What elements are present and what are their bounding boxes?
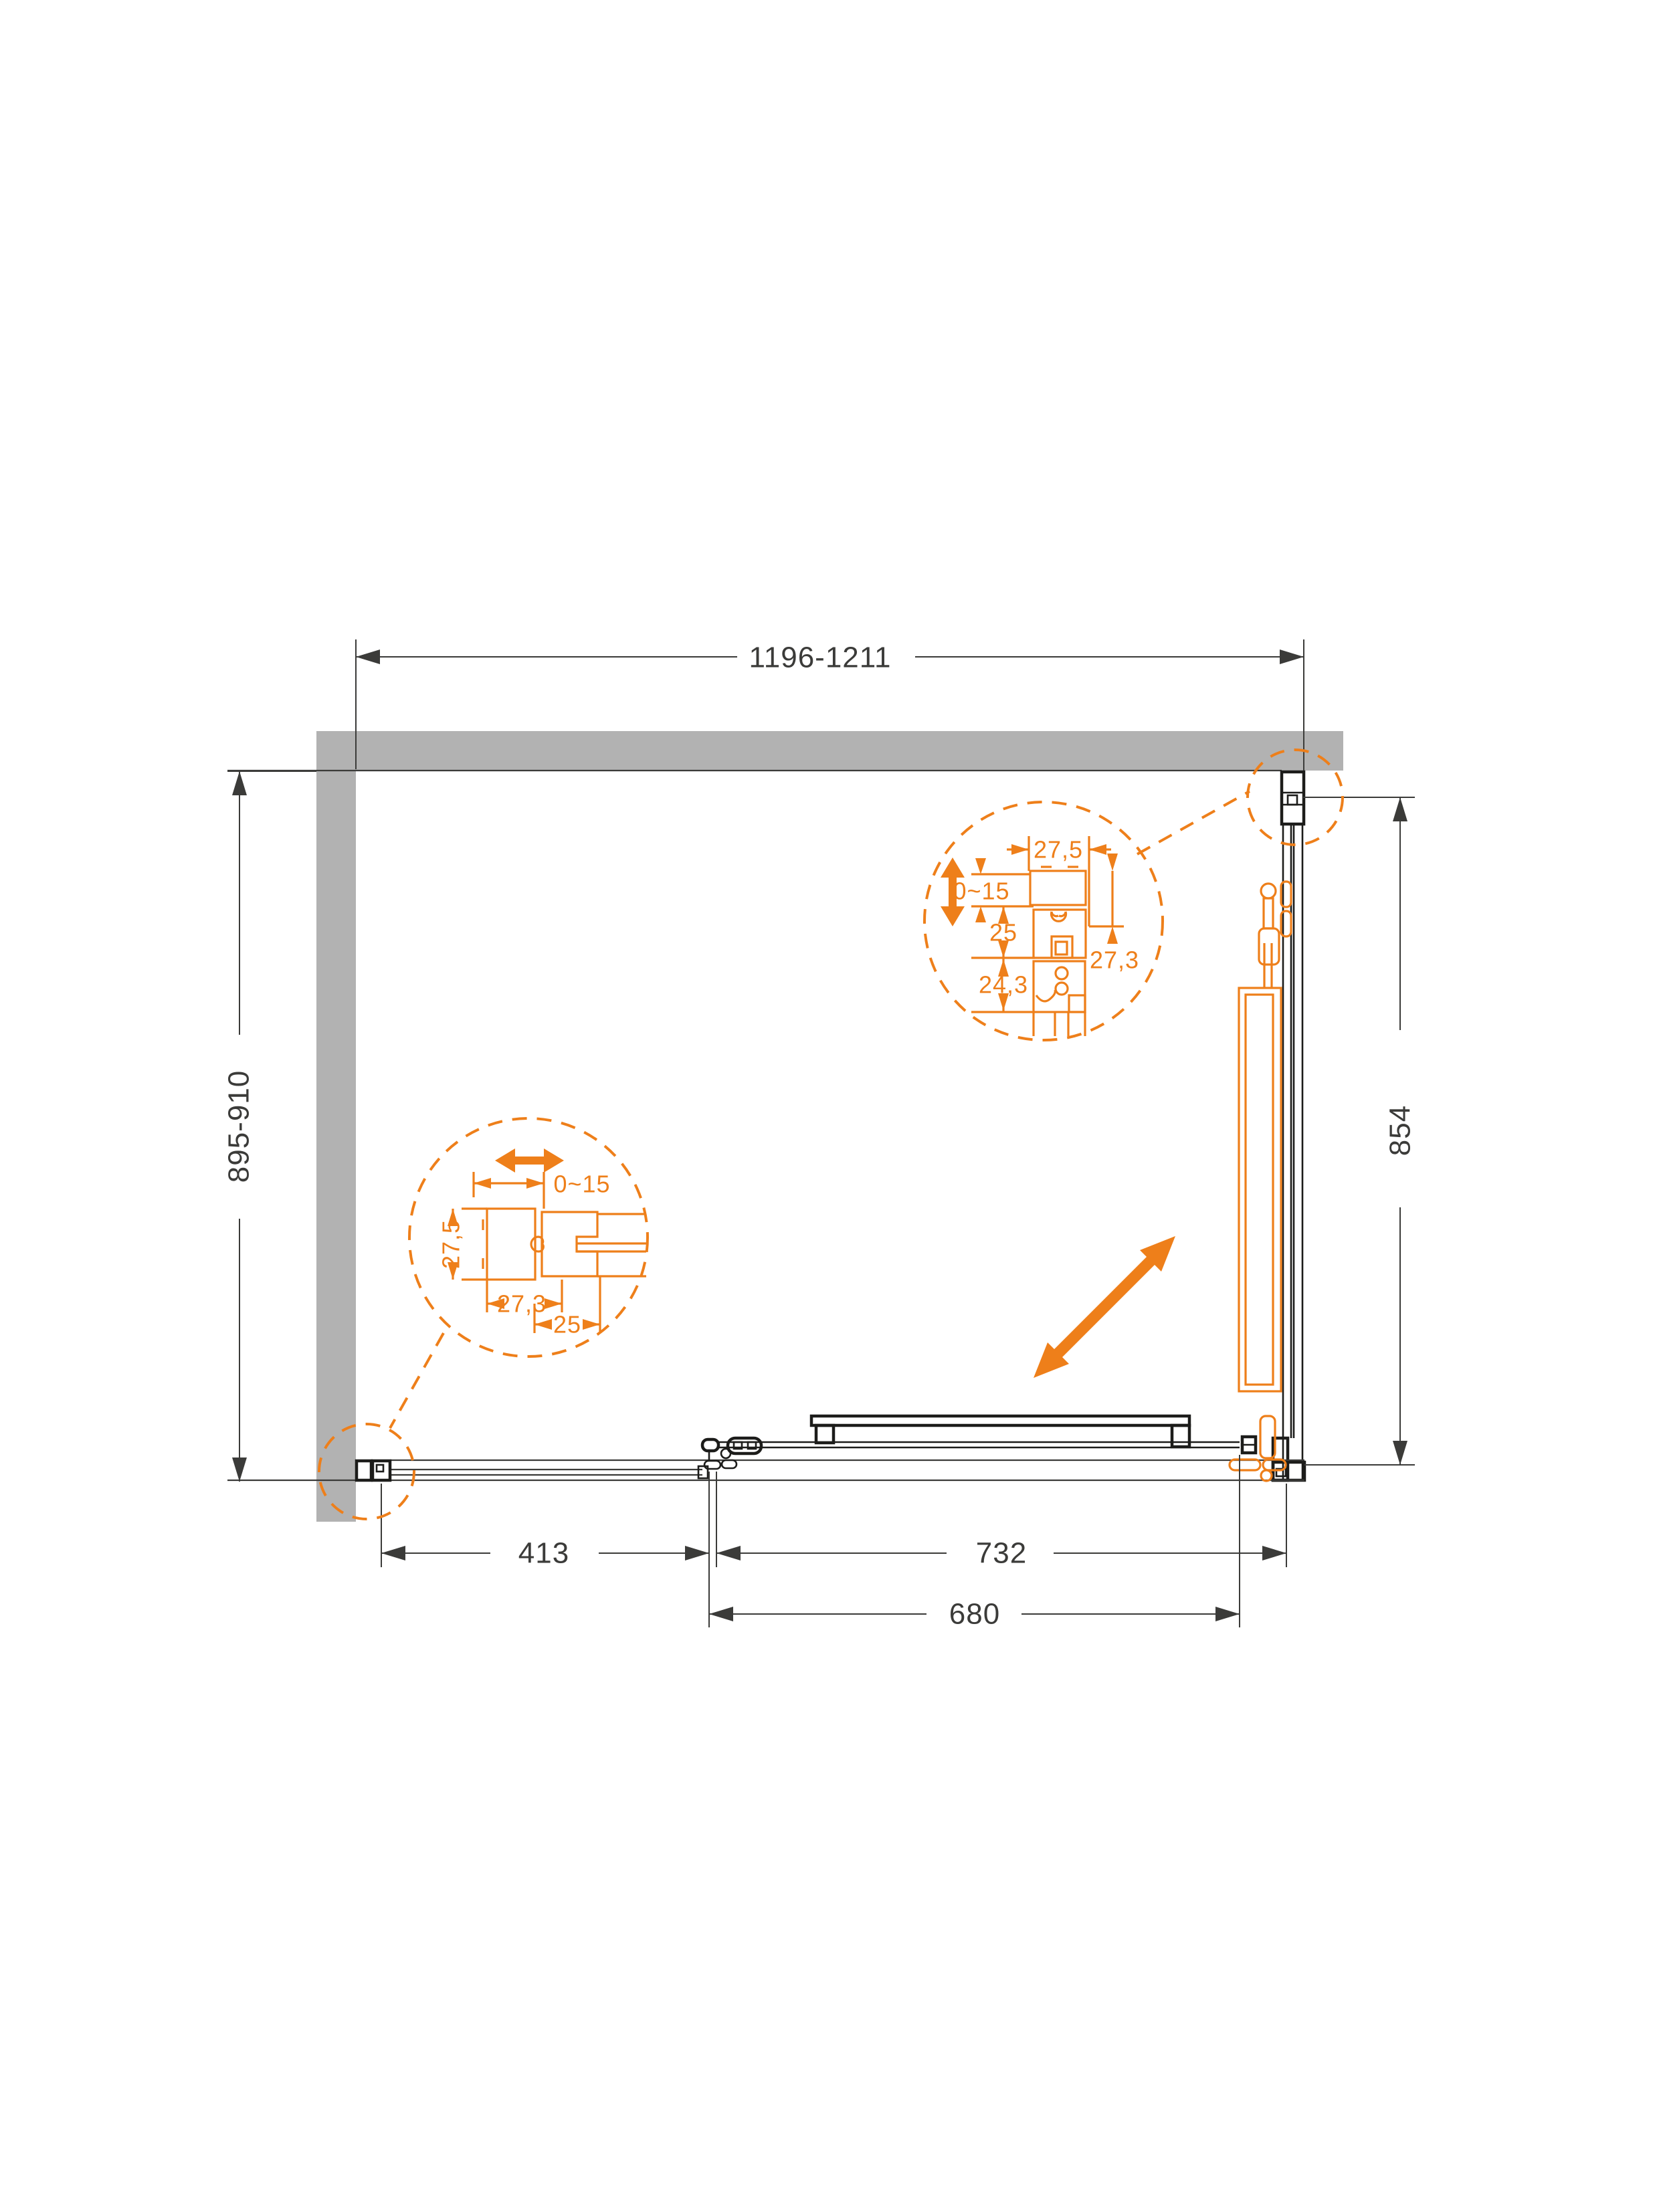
dim-top-width-value: 1196-1211 [749, 641, 892, 674]
bottom-left-wall-profile [357, 1461, 390, 1480]
leader-left [390, 1333, 444, 1428]
technical-drawing-page: 1196-1211 895-910 854 413 732 [0, 0, 1659, 2212]
dim-fixed-glass-value: 413 [518, 1537, 569, 1570]
svg-text:25: 25 [553, 1311, 581, 1338]
dimension-right-side-glass: 854 [1303, 797, 1417, 1465]
door-handle-knob [728, 1438, 761, 1453]
leader-top [1137, 791, 1250, 854]
detail-left-profile [483, 1209, 646, 1280]
svg-text:25: 25 [989, 919, 1017, 946]
detail-top-dim-roller: 24,3 [971, 958, 1035, 1012]
left-wall [316, 731, 356, 1522]
top-roller-hanger [1259, 882, 1291, 988]
detail-top-profile [1030, 867, 1089, 1036]
bottom-roller-guide [1230, 1416, 1286, 1481]
front-fixed-glass [390, 1466, 708, 1478]
top-right-wall-profile [1282, 772, 1304, 824]
slide-direction-arrow [1034, 1236, 1175, 1378]
svg-text:0~15: 0~15 [553, 1171, 610, 1198]
dimension-fixed-glass: 413 [381, 1472, 709, 1627]
detail-top-profile-section: 27,5 0~15 25 24,3 [941, 836, 1139, 1037]
detail-top-dim-adjust: 0~15 [941, 858, 1034, 926]
svg-text:24,3: 24,3 [979, 971, 1028, 999]
enclosure-plan-drawing: 1196-1211 895-910 854 413 732 [0, 0, 1659, 2212]
horizontal-adjust-arrow-icon [495, 1148, 564, 1173]
dim-opening-value: 732 [976, 1537, 1027, 1570]
svg-text:0~15: 0~15 [953, 878, 1009, 905]
sliding-door-glass [718, 1442, 1240, 1447]
detail-left-profile-section: 0~15 27,5 [437, 1148, 647, 1338]
dimension-left-depth: 895-910 [223, 771, 317, 1482]
dim-door-glass-value: 680 [949, 1598, 1000, 1631]
detail-left-dim-adjust: 0~15 [474, 1171, 611, 1209]
svg-text:27,3: 27,3 [497, 1290, 547, 1318]
svg-text:27,3: 27,3 [1090, 946, 1139, 974]
detail-left-dim-width: 27,3 [487, 1280, 562, 1318]
svg-text:27,5: 27,5 [437, 1219, 465, 1269]
top-wall [316, 731, 1343, 771]
dim-left-depth-value: 895-910 [223, 1070, 256, 1183]
walls [316, 731, 1343, 1522]
dim-side-glass-value: 854 [1384, 1105, 1417, 1156]
callout-circles [319, 750, 1343, 1519]
dimension-door-glass: 680 [709, 1455, 1240, 1631]
detail-left-dim-height: 27,5 [437, 1209, 488, 1280]
detail-top-dim-width: 27,5 [1007, 836, 1111, 872]
svg-text:27,5: 27,5 [1034, 836, 1083, 864]
detail-top-dim-depth: 27,3 [1089, 853, 1139, 974]
dimension-opening: 732 [716, 1472, 1286, 1570]
sliding-panel-open-position [1230, 882, 1291, 1481]
door-right-end-bracket [1242, 1437, 1256, 1453]
right-side-panel [1283, 824, 1302, 1480]
enclosure-linework [227, 771, 1304, 1480]
